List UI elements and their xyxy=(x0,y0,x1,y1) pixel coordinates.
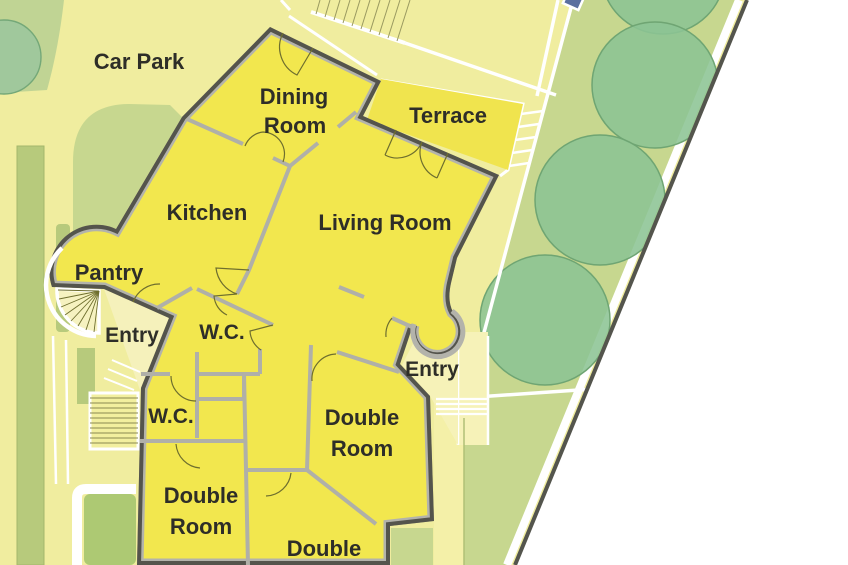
svg-text:Terrace: Terrace xyxy=(409,103,487,128)
svg-text:Entry: Entry xyxy=(405,358,459,381)
svg-text:Room: Room xyxy=(170,514,232,539)
svg-text:Kitchen: Kitchen xyxy=(167,200,248,225)
svg-text:Entry: Entry xyxy=(105,324,159,347)
svg-text:Living Room: Living Room xyxy=(318,210,451,235)
svg-text:W.C.: W.C. xyxy=(148,405,194,428)
svg-text:Double: Double xyxy=(287,536,362,561)
svg-text:Room: Room xyxy=(264,113,326,138)
svg-text:Room: Room xyxy=(331,436,393,461)
svg-text:Double: Double xyxy=(325,405,400,430)
svg-text:Double: Double xyxy=(164,483,239,508)
svg-text:Pantry: Pantry xyxy=(75,260,144,285)
svg-text:W.C.: W.C. xyxy=(199,321,245,344)
svg-text:Dining: Dining xyxy=(260,84,328,109)
svg-text:Car Park: Car Park xyxy=(94,49,185,74)
